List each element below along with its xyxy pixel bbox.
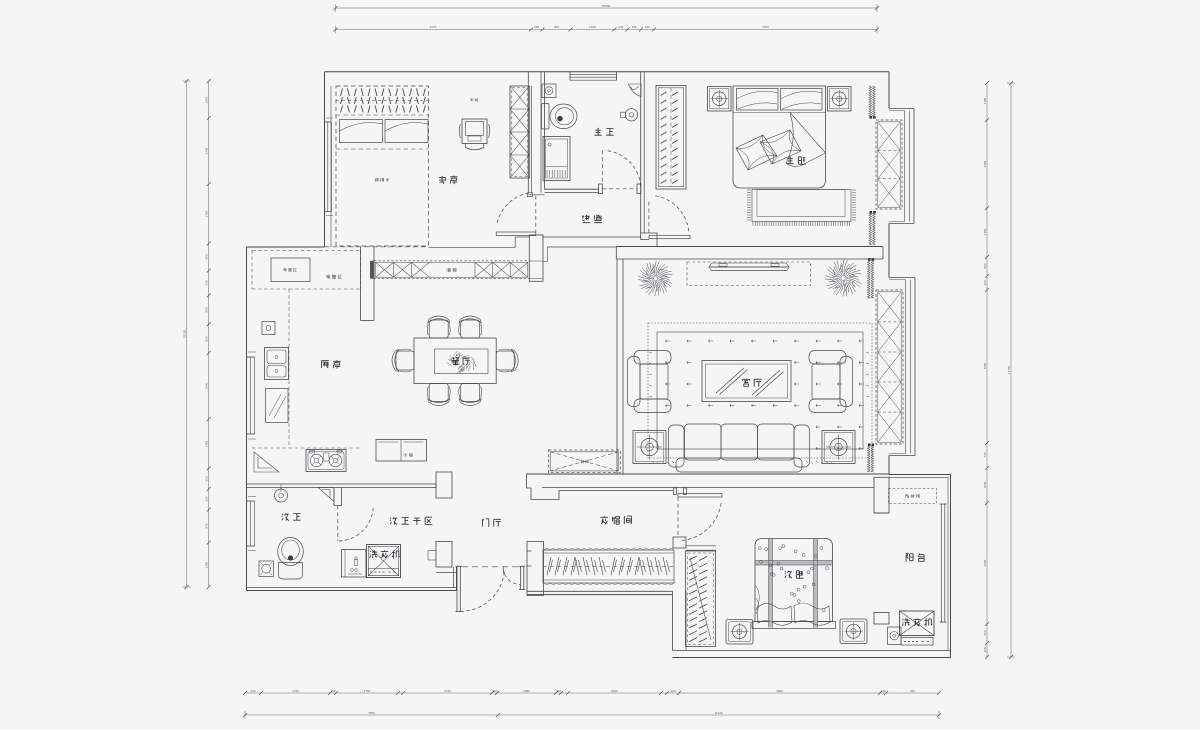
svg-text:240: 240 — [492, 689, 497, 693]
svg-text:610: 610 — [205, 476, 209, 481]
svg-text:1750: 1750 — [364, 689, 371, 693]
svg-text:1940: 1940 — [205, 382, 209, 389]
svg-text:560: 560 — [983, 630, 987, 635]
svg-text:3600: 3600 — [983, 559, 987, 566]
svg-text:600: 600 — [205, 496, 209, 501]
svg-text:3270: 3270 — [430, 25, 437, 29]
svg-text:3660: 3660 — [776, 689, 783, 693]
svg-text:240: 240 — [880, 689, 885, 693]
svg-text:420: 420 — [983, 647, 987, 652]
svg-text:490: 490 — [910, 689, 915, 693]
svg-text:420: 420 — [983, 280, 987, 285]
svg-text:1750: 1750 — [205, 210, 209, 217]
svg-text:2600: 2600 — [983, 160, 987, 167]
svg-text:800: 800 — [205, 254, 209, 259]
svg-text:240: 240 — [632, 25, 637, 29]
svg-text:100: 100 — [330, 689, 335, 693]
svg-text:1450: 1450 — [983, 228, 987, 235]
svg-text:1940: 1940 — [205, 147, 209, 154]
svg-text:240: 240 — [645, 25, 650, 29]
svg-text:15060: 15060 — [602, 4, 611, 8]
svg-text:1680: 1680 — [523, 689, 530, 693]
svg-text:900: 900 — [554, 25, 559, 29]
svg-text:240: 240 — [556, 689, 561, 693]
svg-text:4550: 4550 — [983, 362, 987, 369]
svg-text:1070: 1070 — [205, 96, 209, 103]
svg-text:1040: 1040 — [983, 481, 987, 488]
svg-text:2190: 2190 — [444, 689, 451, 693]
svg-text:240: 240 — [534, 25, 539, 29]
svg-text:7060: 7060 — [762, 25, 769, 29]
svg-text:1760: 1760 — [292, 689, 299, 693]
svg-text:290: 290 — [670, 689, 675, 693]
svg-text:730: 730 — [205, 280, 209, 285]
svg-text:15120: 15120 — [182, 329, 186, 338]
svg-text:850: 850 — [205, 336, 209, 341]
svg-text:14760: 14760 — [1007, 365, 1011, 374]
svg-text:560: 560 — [983, 263, 987, 268]
svg-text:850: 850 — [205, 307, 209, 312]
svg-text:1450: 1450 — [205, 440, 209, 447]
svg-text:11240: 11240 — [714, 711, 722, 715]
svg-text:7560: 7560 — [368, 711, 375, 715]
svg-text:1460: 1460 — [589, 25, 596, 29]
svg-text:1100: 1100 — [983, 97, 987, 104]
svg-text:240: 240 — [618, 25, 623, 29]
svg-text:740: 740 — [983, 452, 987, 457]
svg-text:2640: 2640 — [611, 689, 618, 693]
svg-text:970: 970 — [205, 523, 209, 528]
svg-text:1300: 1300 — [205, 561, 209, 568]
svg-text:240: 240 — [250, 689, 255, 693]
